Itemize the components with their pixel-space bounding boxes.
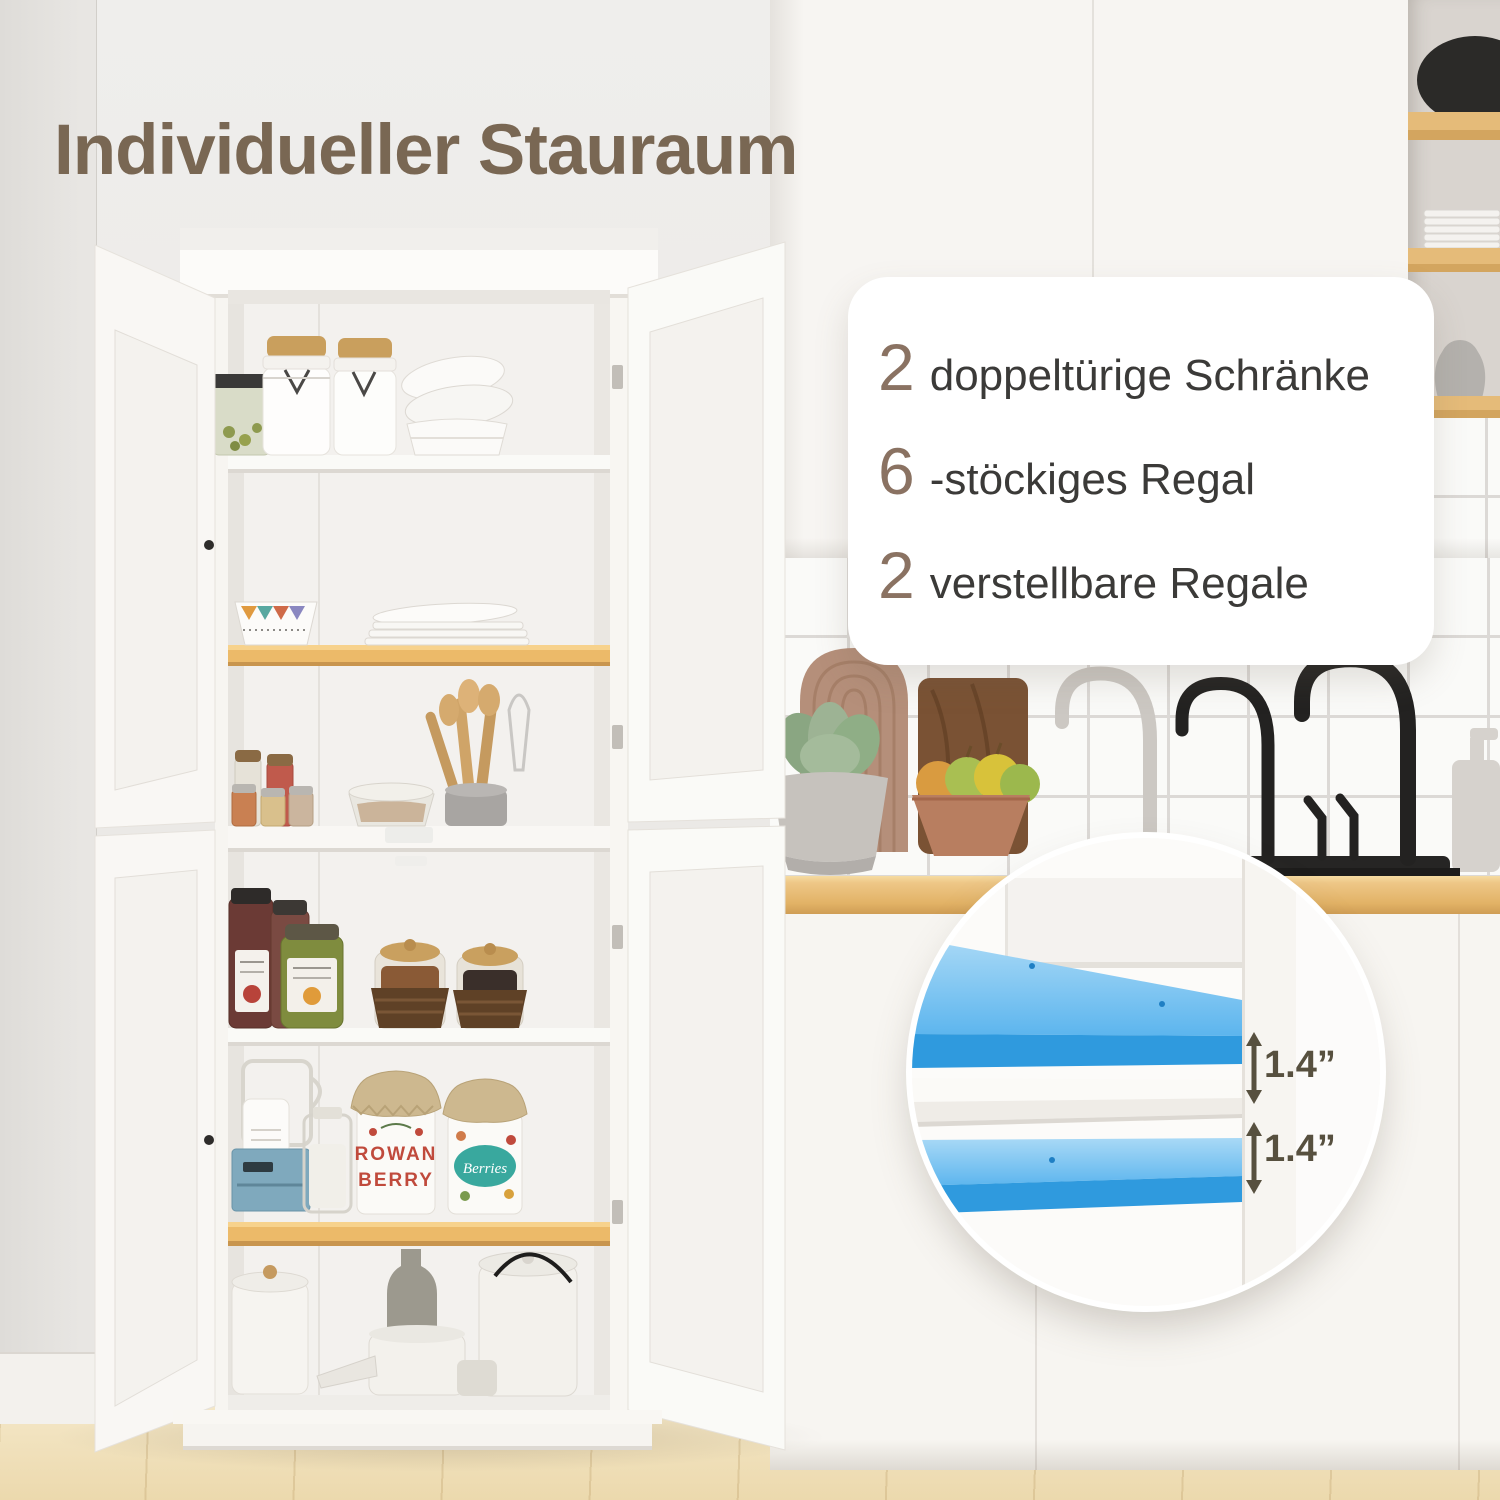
blue-box [232,1149,310,1211]
left-stile [215,298,228,1422]
shelf-wood-2 [228,1222,610,1246]
plate-stack [1424,210,1500,248]
wicker-jar-1 [371,939,449,1028]
feature-row-tiers: 6 -stöckiges Regal [878,438,1434,504]
cabinet-bottom-panel [228,1395,610,1410]
small-jug [457,1360,497,1396]
feature-label: -stöckiges Regal [930,458,1255,502]
rowan-label-line2: BERRY [358,1170,434,1191]
door-knob-upper [204,540,214,550]
green-jar [281,924,343,1028]
shelf-zoom-inset: 1.4” 1.4” [912,838,1380,1306]
faucet-shadow [1062,674,1150,862]
left-door-lower [95,830,215,1452]
lidded-bowl [349,783,434,826]
shelf-white-1 [228,455,610,473]
rowan-label-line1: ROWAN [355,1144,438,1165]
feature-number: 2 [878,542,915,608]
right-stile [610,298,628,1422]
canister-jar-1 [263,336,330,455]
pattern-bowl [235,602,317,645]
door-latch-lower [395,856,427,866]
rowan-berry-jar: ROWAN BERRY [351,1071,441,1214]
niche-shelf-1 [1408,112,1500,130]
feature-label: verstellbare Regale [930,562,1309,606]
white-pot [232,1265,308,1394]
soap-bottle-silhouette [1452,728,1500,872]
berries-jar: Berries [443,1079,527,1214]
shelf-gap-measurement-top: 1.4” [1264,1044,1336,1087]
left-wall [0,0,97,1368]
right-door-upper [628,242,785,822]
feature-row-shelves: 2 verstellbare Regale [878,542,1434,608]
lower-cabinet-seam-right [1458,914,1460,1470]
shelf-wood-1 [228,645,610,666]
lower-cabinet-base-shadow [770,1440,1500,1470]
inset-back-panel [1007,878,1242,968]
cabinet-top-board [180,228,658,299]
feature-card: 2 doppeltürige Schränke 6 -stöckiges Reg… [848,277,1434,665]
shelf-white-2 [228,1028,610,1046]
door-latch [385,827,433,843]
product-scene: ROWAN BERRY Berries [0,0,1500,1500]
blue-shelf-bottom [912,1138,1242,1214]
gray-vase [1435,340,1485,398]
left-door-upper [95,245,215,828]
page-title: Individueller Stauraum [54,110,954,191]
berries-label: Berries [463,1161,507,1177]
right-door-lower [628,826,785,1450]
door-knob-lower [204,1135,214,1145]
faucet [1182,659,1460,877]
cabinet-plinth [173,1410,662,1450]
feature-label: doppeltürige Schränke [930,354,1370,398]
niche-shelf-2 [1408,248,1500,264]
feature-row-doors: 2 doppeltürige Schränke [878,334,1434,400]
wicker-jar-2 [453,943,527,1028]
black-bowl [1417,36,1500,124]
shelf-gap-measurement-bottom: 1.4” [1264,1128,1336,1171]
canister-jar-2 [334,338,396,455]
feature-number: 6 [878,438,915,504]
feature-number: 2 [878,334,915,400]
pantry-cabinet: ROWAN BERRY Berries [85,210,795,1460]
